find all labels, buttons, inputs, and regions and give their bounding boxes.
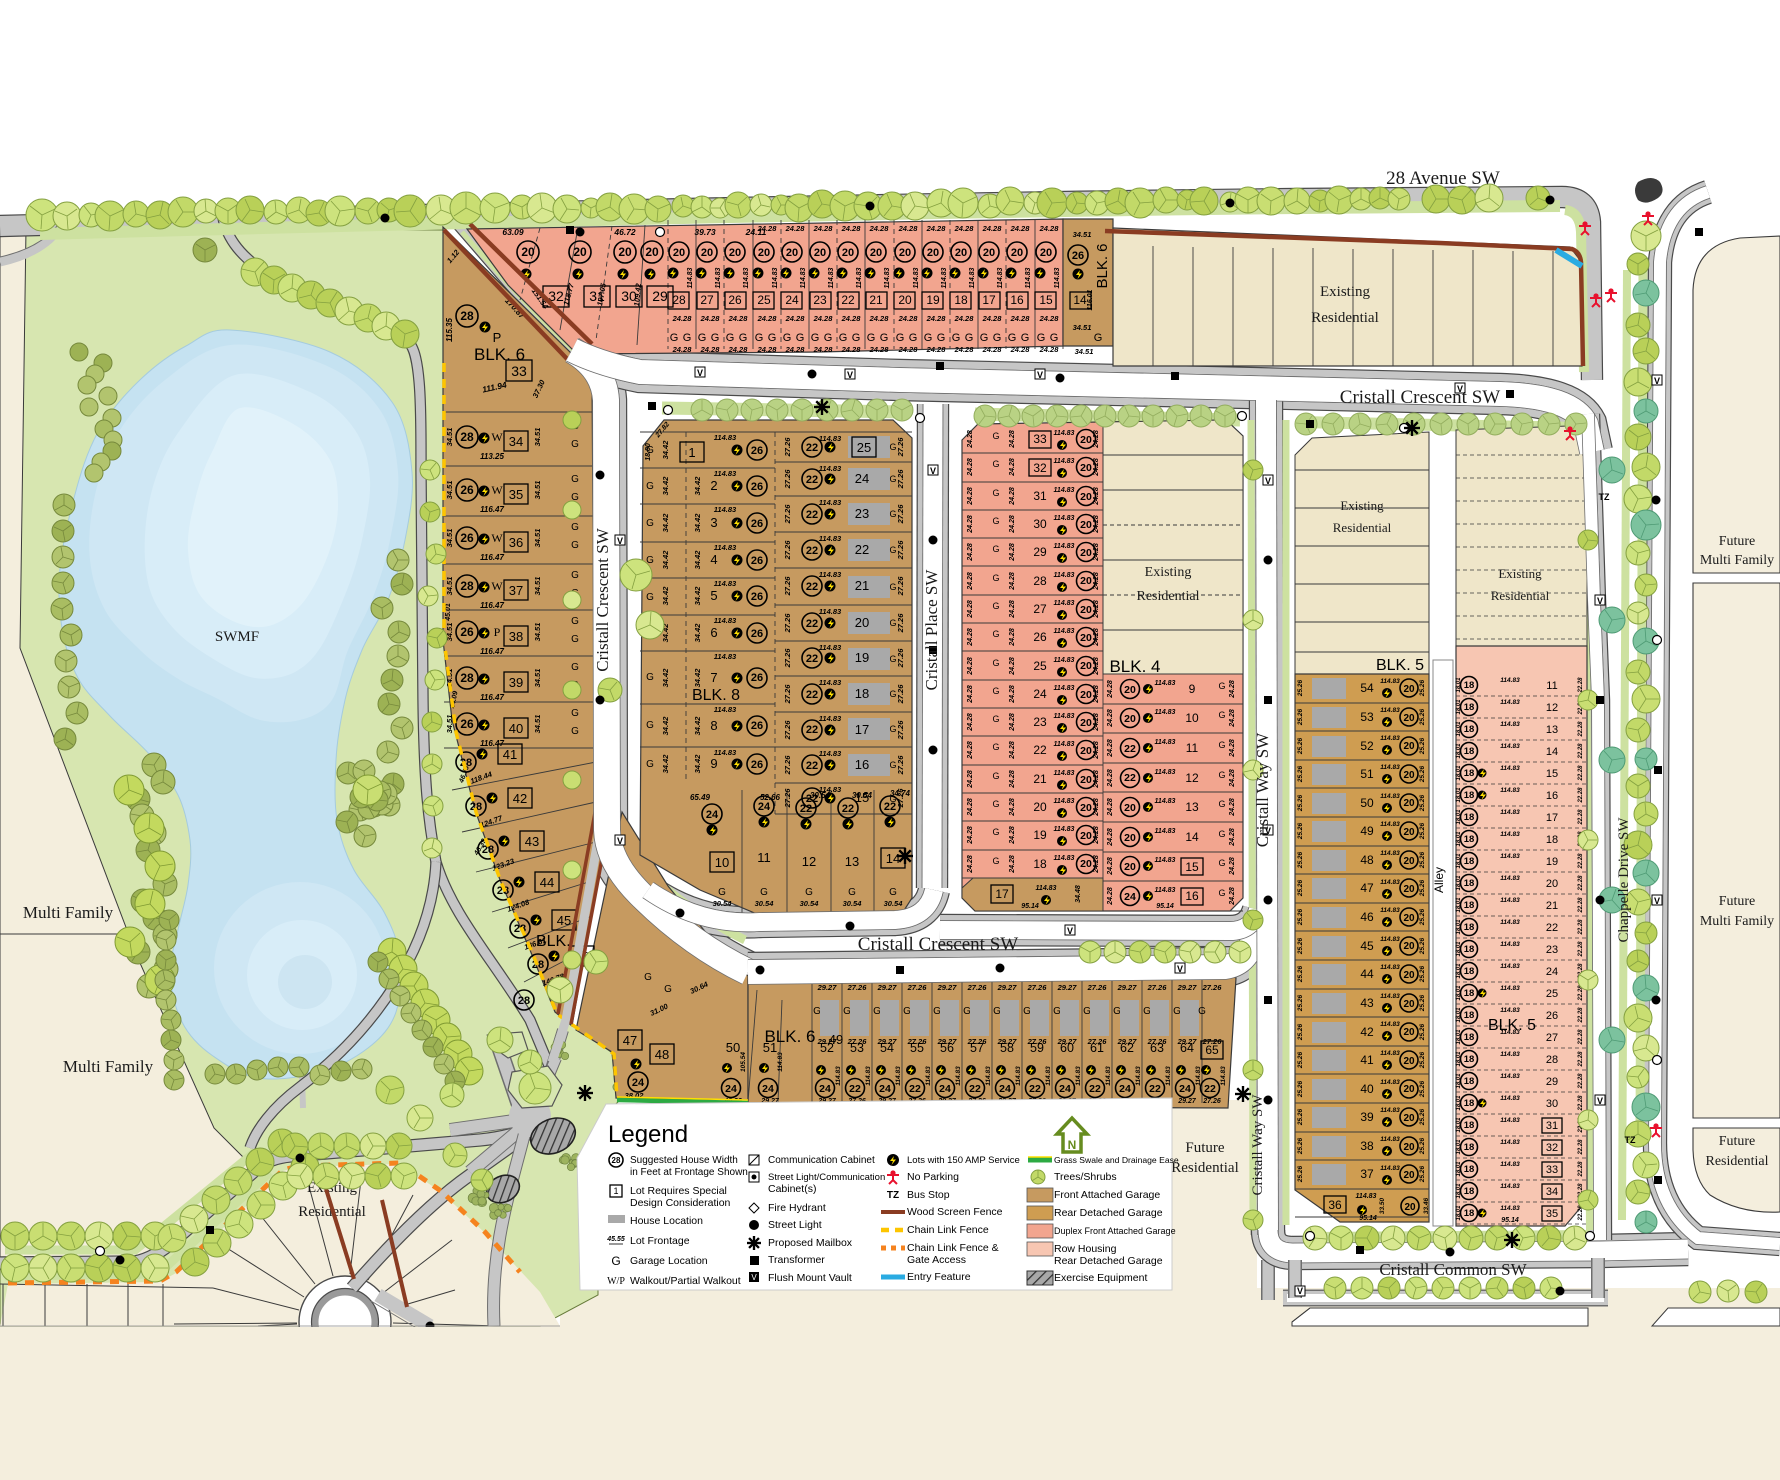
svg-text:G: G — [768, 332, 777, 344]
svg-text:24.28: 24.28 — [967, 430, 974, 449]
svg-text:Wood Screen Fence: Wood Screen Fence — [907, 1206, 1003, 1218]
svg-text:33: 33 — [1546, 1164, 1558, 1176]
svg-text:22: 22 — [806, 581, 818, 593]
svg-text:25.26: 25.26 — [1297, 1023, 1304, 1041]
svg-text:24.28: 24.28 — [1093, 487, 1100, 506]
svg-text:18.01: 18.01 — [1456, 1073, 1462, 1089]
svg-text:20: 20 — [1403, 1142, 1415, 1153]
svg-text:114.83: 114.83 — [1500, 1205, 1520, 1212]
svg-text:TZ: TZ — [1625, 1135, 1636, 1145]
svg-text:30.54: 30.54 — [852, 791, 873, 800]
svg-text:Cristall Way SW: Cristall Way SW — [1250, 1094, 1266, 1196]
svg-text:21: 21 — [1546, 900, 1558, 912]
svg-text:Existing: Existing — [1145, 565, 1192, 580]
svg-text:114.83: 114.83 — [1380, 936, 1400, 943]
svg-text:24.28: 24.28 — [1107, 798, 1114, 817]
svg-text:25: 25 — [1033, 659, 1047, 673]
svg-text:24.28: 24.28 — [1093, 741, 1100, 760]
svg-text:G: G — [896, 332, 905, 344]
svg-text:20: 20 — [927, 247, 939, 259]
svg-text:114.83: 114.83 — [714, 433, 737, 442]
svg-text:G: G — [1021, 332, 1030, 344]
svg-text:114.83: 114.83 — [819, 534, 842, 543]
svg-text:Duplex Front Attached Garage: Duplex Front Attached Garage — [1054, 1226, 1176, 1236]
svg-text:114.83: 114.83 — [1155, 769, 1176, 776]
svg-text:26: 26 — [728, 293, 742, 307]
svg-text:27.26: 27.26 — [783, 540, 792, 561]
svg-text:22.28: 22.28 — [1578, 809, 1584, 826]
svg-text:44: 44 — [1360, 967, 1374, 981]
svg-text:G: G — [933, 1006, 941, 1017]
svg-text:34.42: 34.42 — [661, 550, 670, 570]
svg-text:Rear Detached Garage: Rear Detached Garage — [1054, 1255, 1163, 1267]
svg-text:24: 24 — [1059, 1083, 1071, 1095]
svg-text:18.01: 18.01 — [1456, 787, 1462, 803]
svg-text:114.83: 114.83 — [1054, 515, 1075, 522]
svg-text:20: 20 — [1040, 247, 1052, 259]
svg-text:24.28: 24.28 — [967, 713, 974, 732]
svg-text:24: 24 — [785, 293, 799, 307]
svg-text:24.28: 24.28 — [1093, 600, 1100, 619]
svg-text:24.28: 24.28 — [1009, 685, 1016, 704]
svg-text:20: 20 — [1080, 689, 1092, 701]
svg-text:42: 42 — [1360, 1025, 1374, 1039]
svg-text:22: 22 — [806, 442, 818, 454]
svg-text:18.01: 18.01 — [1456, 1051, 1462, 1067]
svg-text:38: 38 — [1360, 1139, 1374, 1153]
svg-text:55: 55 — [910, 1041, 924, 1055]
svg-text:34.42: 34.42 — [661, 440, 670, 460]
svg-text:Future: Future — [1719, 1134, 1756, 1149]
svg-text:G: G — [909, 332, 918, 344]
svg-text:G: G — [698, 332, 707, 344]
svg-text:G: G — [646, 592, 654, 603]
svg-text:28: 28 — [1033, 574, 1047, 588]
svg-text:24.28: 24.28 — [967, 487, 974, 506]
svg-text:24.28: 24.28 — [1093, 572, 1100, 591]
svg-text:21: 21 — [869, 293, 883, 307]
svg-text:G: G — [1113, 1006, 1121, 1017]
svg-text:114.83: 114.83 — [819, 498, 842, 507]
svg-text:114.83: 114.83 — [1054, 430, 1075, 437]
svg-text:24: 24 — [939, 1083, 951, 1095]
svg-text:10: 10 — [1185, 711, 1199, 725]
svg-text:23: 23 — [1546, 944, 1558, 956]
svg-text:G: G — [889, 618, 896, 628]
svg-text:24.28: 24.28 — [967, 543, 974, 562]
svg-text:G: G — [813, 1006, 821, 1017]
svg-text:25.26: 25.26 — [1297, 1137, 1304, 1155]
svg-text:9: 9 — [710, 756, 717, 771]
svg-text:114.83: 114.83 — [941, 267, 948, 288]
svg-text:Multi Family: Multi Family — [23, 903, 114, 922]
svg-text:Proposed Mailbox: Proposed Mailbox — [768, 1237, 853, 1249]
svg-text:114.83: 114.83 — [1380, 764, 1400, 771]
svg-text:24.28: 24.28 — [898, 345, 919, 354]
svg-text:53: 53 — [1360, 710, 1374, 724]
svg-text:24.28: 24.28 — [1093, 770, 1100, 789]
svg-text:G: G — [1173, 1006, 1181, 1017]
svg-text:34.42: 34.42 — [661, 513, 670, 533]
svg-text:24.28: 24.28 — [785, 224, 806, 233]
svg-text:27.26: 27.26 — [896, 613, 905, 634]
svg-text:G: G — [992, 544, 999, 554]
svg-text:24.28: 24.28 — [1010, 224, 1031, 233]
svg-text:105.54: 105.54 — [740, 1052, 747, 1072]
svg-text:42: 42 — [513, 791, 527, 806]
svg-text:BLK. 6: BLK. 6 — [764, 1027, 815, 1046]
svg-text:54: 54 — [1360, 681, 1374, 695]
svg-text:Residential: Residential — [1171, 1160, 1239, 1176]
svg-text:61: 61 — [1090, 1041, 1104, 1055]
svg-text:49: 49 — [1360, 824, 1374, 838]
svg-text:114.83: 114.83 — [1500, 677, 1520, 684]
svg-text:24.28: 24.28 — [1009, 458, 1016, 477]
svg-text:20: 20 — [1080, 575, 1092, 587]
svg-text:24.28: 24.28 — [869, 224, 890, 233]
svg-text:26: 26 — [751, 591, 763, 603]
svg-text:20: 20 — [955, 247, 967, 259]
svg-text:45: 45 — [1360, 939, 1374, 953]
svg-text:G: G — [1218, 710, 1225, 720]
svg-text:114.83: 114.83 — [1054, 657, 1075, 664]
svg-text:18: 18 — [1464, 790, 1475, 801]
svg-text:114.83: 114.83 — [1380, 993, 1400, 1000]
svg-text:G: G — [992, 488, 999, 498]
svg-text:24.28: 24.28 — [967, 855, 974, 874]
svg-text:Cristall Crescent SW: Cristall Crescent SW — [1340, 387, 1500, 408]
svg-text:45.01: 45.01 — [445, 603, 452, 622]
svg-text:34.51: 34.51 — [533, 715, 542, 734]
svg-text:20: 20 — [1403, 770, 1415, 781]
svg-text:31: 31 — [1033, 489, 1047, 503]
svg-text:24.28: 24.28 — [982, 224, 1003, 233]
svg-text:114.83: 114.83 — [1220, 1066, 1227, 1086]
svg-text:24.28: 24.28 — [1009, 543, 1016, 562]
svg-text:24.28: 24.28 — [898, 314, 919, 323]
svg-text:20: 20 — [1403, 684, 1415, 695]
svg-text:54: 54 — [880, 1041, 894, 1055]
svg-text:34.42: 34.42 — [693, 623, 702, 643]
svg-text:114.83: 114.83 — [1380, 1050, 1400, 1057]
svg-text:27.26: 27.26 — [896, 437, 905, 458]
svg-text:Chappelle Drive SW: Chappelle Drive SW — [1616, 817, 1632, 943]
svg-text:27.26: 27.26 — [896, 469, 905, 490]
svg-text:25.26: 25.26 — [1419, 1108, 1426, 1126]
svg-text:114.83: 114.83 — [1036, 885, 1057, 892]
svg-text:24.28: 24.28 — [967, 628, 974, 647]
svg-text:G: G — [992, 799, 999, 809]
svg-text:16: 16 — [855, 757, 869, 772]
svg-text:24.28: 24.28 — [1107, 857, 1114, 876]
svg-text:24.28: 24.28 — [672, 345, 693, 354]
svg-text:G: G — [646, 720, 654, 731]
svg-text:24.28: 24.28 — [1093, 713, 1100, 732]
svg-text:Cristall Crescent SW: Cristall Crescent SW — [858, 934, 1018, 955]
svg-text:114.83: 114.83 — [1500, 765, 1520, 772]
svg-text:18: 18 — [1464, 746, 1475, 757]
svg-text:Cristall Common SW: Cristall Common SW — [1379, 1260, 1527, 1279]
svg-text:22: 22 — [800, 803, 812, 815]
svg-text:39.73: 39.73 — [694, 227, 716, 237]
svg-text:114.83: 114.83 — [1054, 600, 1075, 607]
svg-text:116.47: 116.47 — [480, 647, 504, 656]
svg-text:63: 63 — [1150, 1041, 1164, 1055]
svg-text:34.51: 34.51 — [445, 428, 454, 447]
svg-text:25.26: 25.26 — [1297, 765, 1304, 783]
svg-text:20: 20 — [1124, 832, 1136, 844]
svg-text:36: 36 — [509, 535, 523, 550]
svg-text:24.28: 24.28 — [1093, 685, 1100, 704]
svg-text:34.48: 34.48 — [1075, 885, 1082, 903]
svg-text:Trees/Shrubs: Trees/Shrubs — [1054, 1171, 1117, 1183]
svg-text:50: 50 — [726, 1040, 740, 1055]
svg-text:G: G — [1218, 681, 1225, 691]
svg-text:26: 26 — [460, 531, 474, 545]
svg-text:G: G — [1037, 332, 1046, 344]
svg-text:48: 48 — [655, 1047, 669, 1062]
svg-text:Row Housing: Row Housing — [1054, 1243, 1117, 1255]
svg-text:114.83: 114.83 — [1500, 1183, 1520, 1190]
svg-text:26: 26 — [460, 625, 474, 639]
svg-text:G: G — [889, 887, 897, 898]
svg-text:33: 33 — [1033, 432, 1047, 446]
svg-text:24.28: 24.28 — [813, 314, 834, 323]
svg-text:27.26: 27.26 — [783, 755, 792, 776]
svg-text:114.83: 114.83 — [1380, 1107, 1400, 1114]
svg-text:34.51: 34.51 — [533, 529, 542, 548]
svg-text:4: 4 — [710, 552, 717, 567]
svg-text:114.83: 114.83 — [1500, 963, 1520, 970]
svg-text:18.01: 18.01 — [1456, 897, 1462, 913]
svg-text:18.01: 18.01 — [1456, 1095, 1462, 1111]
svg-text:24.28: 24.28 — [982, 345, 1003, 354]
svg-text:24.28: 24.28 — [967, 572, 974, 591]
svg-text:28: 28 — [460, 579, 474, 593]
svg-text:11: 11 — [1546, 680, 1557, 692]
svg-text:18: 18 — [1464, 834, 1475, 845]
svg-text:G: G — [1023, 1006, 1031, 1017]
svg-text:38: 38 — [509, 629, 523, 644]
svg-text:114.83: 114.83 — [1380, 907, 1400, 914]
svg-text:16: 16 — [1546, 790, 1558, 802]
svg-text:34.42: 34.42 — [661, 476, 670, 496]
svg-text:20: 20 — [1080, 434, 1092, 446]
svg-text:114.83: 114.83 — [819, 607, 842, 616]
svg-text:G: G — [1218, 770, 1225, 780]
svg-text:25.26: 25.26 — [1297, 908, 1304, 926]
svg-text:24.28: 24.28 — [672, 314, 693, 323]
svg-text:18: 18 — [1464, 878, 1475, 889]
svg-text:114.83: 114.83 — [1195, 1066, 1202, 1086]
svg-text:18.01: 18.01 — [1456, 809, 1462, 825]
svg-text:25.26: 25.26 — [1419, 879, 1426, 897]
svg-text:27.26: 27.26 — [896, 684, 905, 705]
svg-text:114.83: 114.83 — [715, 267, 722, 288]
svg-text:18.01: 18.01 — [1456, 721, 1462, 737]
svg-text:22.28: 22.28 — [1578, 1073, 1584, 1090]
svg-text:95.14: 95.14 — [1021, 903, 1039, 910]
svg-text:114.83: 114.83 — [1500, 897, 1520, 904]
svg-text:22: 22 — [842, 803, 854, 815]
svg-text:47: 47 — [623, 1033, 637, 1048]
svg-text:G: G — [839, 332, 848, 344]
svg-text:34.42: 34.42 — [693, 513, 702, 533]
svg-text:V: V — [751, 1273, 757, 1282]
svg-text:20: 20 — [1080, 774, 1092, 786]
svg-text:30.54: 30.54 — [713, 899, 733, 908]
svg-text:40: 40 — [509, 721, 523, 736]
svg-text:114.83: 114.83 — [819, 714, 842, 723]
svg-text:22.28: 22.28 — [1578, 743, 1584, 760]
svg-text:114.83: 114.83 — [1380, 879, 1400, 886]
svg-text:52: 52 — [1360, 739, 1374, 753]
svg-text:V: V — [1265, 476, 1271, 486]
svg-text:Communication Cabinet: Communication Cabinet — [768, 1155, 875, 1166]
svg-text:W: W — [491, 430, 503, 444]
svg-text:G: G — [992, 601, 999, 611]
svg-text:35: 35 — [509, 487, 523, 502]
svg-text:24.28: 24.28 — [1009, 487, 1016, 506]
svg-text:13: 13 — [1185, 800, 1199, 814]
svg-text:18: 18 — [1464, 856, 1475, 867]
svg-text:V: V — [1067, 926, 1073, 936]
svg-text:G: G — [824, 332, 833, 344]
svg-text:Front Attached Garage: Front Attached Garage — [1054, 1189, 1160, 1201]
svg-text:24.28: 24.28 — [1039, 224, 1060, 233]
svg-text:G: G — [843, 1006, 851, 1017]
svg-text:114.83: 114.83 — [1380, 1165, 1400, 1172]
svg-text:19: 19 — [855, 650, 869, 665]
svg-text:P: P — [493, 330, 502, 345]
svg-text:Street Light: Street Light — [768, 1219, 822, 1231]
svg-text:20: 20 — [521, 245, 535, 259]
svg-text:114.83: 114.83 — [1015, 1066, 1022, 1086]
svg-text:24.28: 24.28 — [841, 224, 862, 233]
svg-text:114.83: 114.83 — [1054, 685, 1075, 692]
svg-text:37: 37 — [1360, 1167, 1374, 1181]
svg-text:20: 20 — [1403, 1056, 1415, 1067]
svg-text:47: 47 — [1360, 881, 1374, 895]
svg-text:41: 41 — [503, 747, 517, 762]
svg-text:43: 43 — [1360, 996, 1374, 1010]
svg-text:27.26: 27.26 — [783, 648, 792, 669]
svg-text:34.74: 34.74 — [890, 789, 911, 798]
svg-text:24.28: 24.28 — [1229, 828, 1236, 847]
svg-text:17: 17 — [1546, 812, 1558, 824]
svg-text:114.83: 114.83 — [1165, 1066, 1172, 1086]
svg-text:12: 12 — [1546, 702, 1558, 714]
svg-text:22: 22 — [855, 542, 869, 557]
svg-text:114.83: 114.83 — [1500, 941, 1520, 948]
svg-text:BLK. 6: BLK. 6 — [474, 345, 525, 364]
svg-text:23: 23 — [813, 293, 827, 307]
svg-text:26: 26 — [751, 518, 763, 530]
svg-text:22.28: 22.28 — [1578, 1139, 1584, 1156]
svg-text:18: 18 — [1546, 834, 1558, 846]
svg-text:114.83: 114.83 — [714, 748, 737, 757]
svg-text:24.28: 24.28 — [1093, 628, 1100, 647]
svg-text:V: V — [930, 466, 936, 476]
svg-text:24.28: 24.28 — [1009, 430, 1016, 449]
svg-text:114.83: 114.83 — [1500, 1139, 1520, 1146]
svg-text:24.28: 24.28 — [926, 345, 947, 354]
svg-text:22: 22 — [1204, 1083, 1216, 1095]
svg-text:95.14: 95.14 — [1359, 1215, 1377, 1222]
svg-text:114.83: 114.83 — [1155, 709, 1176, 716]
svg-text:114.83: 114.83 — [985, 1066, 992, 1086]
svg-text:Existing: Existing — [1340, 498, 1384, 513]
svg-text:114.83: 114.83 — [1054, 741, 1075, 748]
svg-text:G: G — [992, 856, 999, 866]
svg-text:2: 2 — [710, 478, 717, 493]
svg-text:24.28: 24.28 — [967, 458, 974, 477]
svg-text:18.01: 18.01 — [1456, 1161, 1462, 1177]
svg-text:25.26: 25.26 — [1297, 1108, 1304, 1126]
svg-text:114.83: 114.83 — [714, 579, 737, 588]
svg-text:18: 18 — [1464, 1164, 1475, 1175]
svg-text:18.01: 18.01 — [1456, 831, 1462, 847]
svg-text:24: 24 — [1124, 891, 1136, 903]
svg-text:18.80: 18.80 — [645, 443, 652, 461]
svg-text:24: 24 — [706, 809, 719, 821]
svg-text:20: 20 — [1080, 660, 1092, 672]
svg-text:20: 20 — [1546, 878, 1558, 890]
svg-text:G: G — [848, 887, 856, 898]
svg-text:114.83: 114.83 — [835, 1066, 842, 1086]
svg-text:20: 20 — [870, 247, 882, 259]
svg-text:20: 20 — [983, 247, 995, 259]
svg-text:35: 35 — [1546, 1208, 1558, 1220]
svg-text:114.83: 114.83 — [884, 267, 891, 288]
svg-text:G: G — [646, 481, 654, 492]
svg-text:House Location: House Location — [630, 1215, 703, 1227]
svg-text:25.26: 25.26 — [1297, 708, 1304, 726]
svg-text:114.83: 114.83 — [969, 267, 976, 288]
svg-text:18: 18 — [1464, 1186, 1475, 1197]
svg-text:48: 48 — [1360, 853, 1374, 867]
svg-text:113.25: 113.25 — [480, 452, 504, 461]
svg-text:114.83: 114.83 — [714, 652, 737, 661]
svg-text:27.26: 27.26 — [896, 540, 905, 561]
svg-text:24.28: 24.28 — [1093, 458, 1100, 477]
svg-text:51: 51 — [1360, 767, 1374, 781]
svg-text:Alley: Alley — [1432, 867, 1446, 893]
svg-text:22: 22 — [806, 724, 818, 736]
svg-text:114.83: 114.83 — [1500, 1161, 1520, 1168]
svg-text:29.27: 29.27 — [937, 983, 958, 992]
svg-text:BLK. 8: BLK. 8 — [692, 687, 740, 704]
svg-text:27.26: 27.26 — [896, 576, 905, 597]
svg-text:24.28: 24.28 — [1039, 345, 1060, 354]
svg-text:114.83: 114.83 — [1380, 1136, 1400, 1143]
svg-text:30.54: 30.54 — [755, 899, 775, 908]
svg-text:34.51: 34.51 — [1075, 347, 1094, 356]
svg-text:114.83: 114.83 — [1500, 919, 1520, 926]
svg-text:18.01: 18.01 — [1456, 853, 1462, 869]
svg-text:Residential: Residential — [1311, 310, 1379, 326]
svg-text:G: G — [571, 616, 579, 627]
svg-text:27.26: 27.26 — [783, 576, 792, 597]
svg-text:V: V — [1597, 596, 1603, 606]
svg-text:18: 18 — [1464, 768, 1475, 779]
svg-text:G: G — [571, 522, 579, 533]
svg-text:114.83: 114.83 — [1054, 267, 1061, 288]
svg-text:13: 13 — [845, 854, 859, 869]
svg-text:24.28: 24.28 — [869, 345, 890, 354]
svg-text:29.27: 29.27 — [997, 983, 1018, 992]
svg-text:114.83: 114.83 — [1155, 887, 1176, 894]
